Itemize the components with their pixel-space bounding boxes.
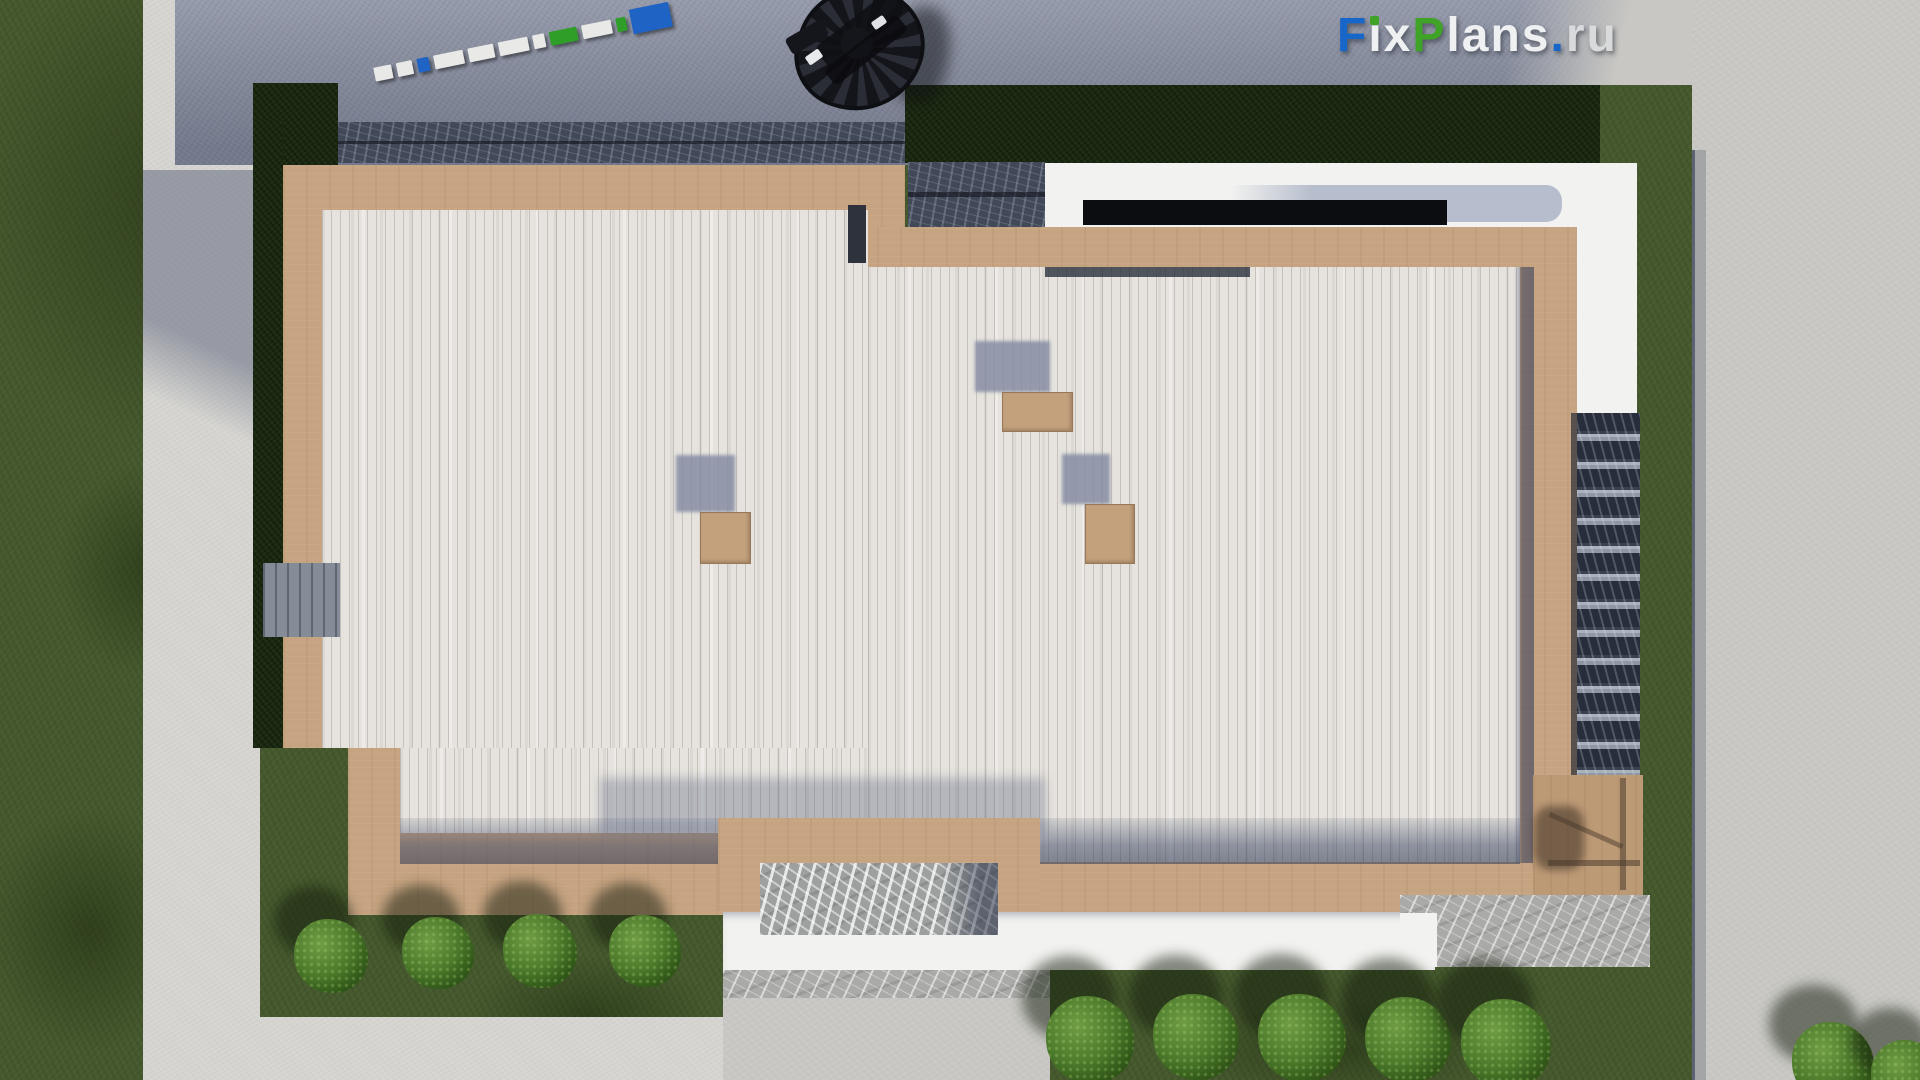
walkway-bottom xyxy=(143,1017,723,1080)
roof-hatch xyxy=(1085,504,1135,564)
ruler-segment xyxy=(581,19,613,39)
marble-patio-bottom-right xyxy=(1400,895,1650,967)
ruler-segment xyxy=(549,26,579,45)
shrub xyxy=(503,914,577,988)
shrub xyxy=(294,919,368,993)
walkway-shadow xyxy=(143,170,260,500)
shrub xyxy=(1153,994,1239,1080)
terrace-shadow-blob xyxy=(1534,806,1584,870)
driveway-right xyxy=(1692,0,1920,1080)
ruler-segment xyxy=(373,64,393,81)
logo-letter: . xyxy=(1550,12,1565,60)
aerial-site-render: FıxPlans.ru xyxy=(0,0,1920,1080)
logo-letter: u xyxy=(1587,12,1618,60)
parapet-right xyxy=(1577,163,1637,418)
logo-letter: ı xyxy=(1368,12,1383,60)
ruler-segment xyxy=(498,36,530,56)
driveway-curb xyxy=(1692,150,1706,1080)
logo-letter: r xyxy=(1566,12,1587,60)
roof-hatch-shadow xyxy=(1062,454,1110,504)
logo-letter: n xyxy=(1490,12,1521,60)
logo-letter: x xyxy=(1384,12,1413,60)
ruler-segment xyxy=(615,16,628,32)
ruler-segment xyxy=(416,56,431,72)
marble-strip-path xyxy=(723,970,1050,998)
glazing-black-band xyxy=(1083,200,1447,225)
ruler-segment xyxy=(396,60,414,77)
roof-groove-vertical xyxy=(1514,267,1534,863)
pergola-shadow-vertical xyxy=(1620,778,1626,890)
ruler-segment xyxy=(467,43,495,62)
hedge-top xyxy=(905,85,1600,163)
roof-planks-right xyxy=(868,267,1520,862)
ruler-segment xyxy=(433,49,465,69)
logo-letter-dot xyxy=(1370,16,1379,25)
shrub xyxy=(402,917,474,989)
white-slab-bottom-right xyxy=(1400,913,1437,967)
side-step-left xyxy=(263,563,340,637)
roof-hatch xyxy=(1002,392,1073,432)
hedge-left-strip xyxy=(253,120,283,748)
stair-edge-line xyxy=(1571,413,1577,775)
granite-curb-top xyxy=(337,122,908,163)
logo-letter: P xyxy=(1412,12,1446,60)
granite-inset-top xyxy=(908,162,1045,227)
logo-letter: s xyxy=(1522,12,1551,60)
roof-hatch-shadow xyxy=(676,455,735,512)
shrub xyxy=(609,915,681,987)
roof-hatch xyxy=(700,512,751,564)
logo-letter: l xyxy=(1446,12,1461,60)
side-slot-top xyxy=(848,205,866,263)
stone-stair-right xyxy=(1577,413,1640,775)
center-path-bottom xyxy=(723,998,1050,1080)
porch-marble-shadow xyxy=(940,863,998,935)
roof-planks-left xyxy=(322,210,868,748)
roof-groove-horizontal xyxy=(1045,267,1250,277)
logo-letter: a xyxy=(1462,12,1491,60)
logo-letter: F xyxy=(1337,12,1368,60)
fixplans-watermark: FıxPlans.ru xyxy=(1337,12,1618,60)
roof-hatch-shadow xyxy=(975,341,1050,392)
ruler-segment xyxy=(532,33,547,49)
